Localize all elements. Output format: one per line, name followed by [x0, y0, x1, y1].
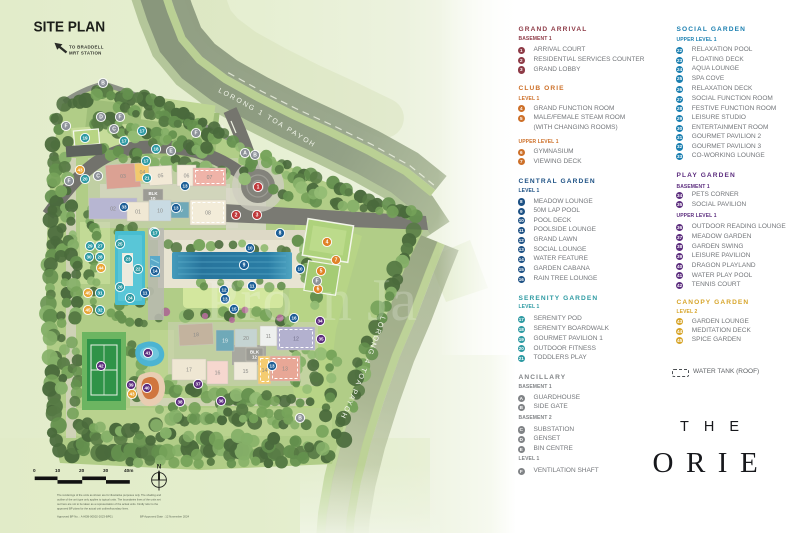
svg-text:12: 12 [293, 336, 299, 342]
svg-text:17: 17 [186, 367, 192, 373]
svg-text:27: 27 [97, 244, 103, 249]
svg-text:B: B [253, 153, 257, 159]
svg-text:13: 13 [173, 206, 179, 211]
svg-text:13: 13 [282, 366, 288, 372]
svg-text:A: A [243, 151, 247, 157]
svg-text:15: 15 [243, 369, 249, 375]
svg-text:08: 08 [205, 210, 211, 216]
svg-text:31: 31 [97, 291, 103, 296]
svg-text:C: C [112, 127, 116, 133]
svg-text:32: 32 [97, 308, 103, 313]
svg-text:11: 11 [266, 334, 271, 340]
svg-text:Pro: Pro [205, 267, 294, 333]
svg-text:29: 29 [87, 244, 93, 249]
svg-text:19: 19 [82, 136, 88, 141]
svg-text:10: 10 [55, 468, 61, 473]
svg-text:BP Approved Date : 12 November: BP Approved Date : 12 November 2024 [140, 515, 190, 519]
svg-text:42: 42 [98, 364, 104, 369]
svg-text:25: 25 [117, 242, 123, 247]
svg-text:approved BP plans for the actu: approved BP plans for the actual unit ou… [57, 507, 129, 511]
svg-text:45: 45 [85, 291, 91, 296]
svg-text:7: 7 [335, 258, 338, 264]
svg-text:N: N [157, 465, 161, 471]
svg-text:06: 06 [184, 173, 190, 179]
svg-text:20: 20 [82, 177, 88, 182]
svg-text:F: F [194, 131, 197, 137]
svg-text:17: 17 [121, 139, 127, 144]
svg-text:40: 40 [144, 386, 150, 391]
svg-text:4: 4 [326, 240, 329, 246]
svg-text:outline of the unit type only: outline of the unit type only applies to… [57, 498, 161, 502]
svg-text:03: 03 [120, 174, 126, 180]
svg-text:13: 13 [182, 184, 188, 189]
svg-text:17: 17 [139, 129, 145, 134]
svg-text:10: 10 [247, 246, 253, 251]
svg-text:1: 1 [257, 185, 260, 191]
svg-text:13: 13 [269, 364, 275, 369]
svg-text:23: 23 [125, 257, 131, 262]
svg-text:28: 28 [97, 255, 103, 260]
svg-text:14: 14 [262, 368, 268, 374]
svg-text:05: 05 [157, 173, 163, 179]
svg-text:8: 8 [279, 231, 282, 237]
svg-text:22: 22 [135, 267, 141, 272]
svg-text:19: 19 [222, 338, 228, 344]
svg-text:16: 16 [215, 370, 221, 376]
svg-text:17: 17 [143, 159, 149, 164]
svg-text:12: 12 [252, 355, 257, 360]
svg-text:24: 24 [127, 296, 133, 301]
svg-text:37: 37 [195, 382, 201, 387]
svg-text:26: 26 [117, 285, 123, 290]
svg-text:SITE PLAN: SITE PLAN [33, 19, 105, 35]
svg-text:MRT STATION: MRT STATION [69, 51, 102, 56]
svg-text:18: 18 [193, 332, 199, 338]
svg-text:07: 07 [207, 175, 213, 181]
svg-text:17: 17 [152, 231, 158, 236]
svg-text:F: F [118, 115, 121, 121]
svg-text:21: 21 [144, 176, 150, 181]
svg-text:F: F [64, 124, 67, 130]
svg-text:3: 3 [256, 213, 259, 219]
svg-text:2: 2 [235, 213, 238, 219]
svg-text:20: 20 [243, 336, 249, 342]
svg-text:01: 01 [135, 209, 141, 215]
svg-text:The renderings of the units as: The renderings of the units as shown are… [57, 493, 162, 497]
svg-text:40m: 40m [124, 468, 133, 473]
svg-text:D: D [99, 115, 103, 121]
svg-text:43: 43 [129, 392, 135, 397]
svg-text:Approved BP No. : A HDB-00502-: Approved BP No. : A HDB-00502-2023-BP01 [57, 515, 113, 519]
svg-text:30: 30 [103, 468, 109, 473]
svg-text:F: F [315, 279, 318, 285]
svg-text:18: 18 [153, 147, 159, 152]
svg-text:44: 44 [98, 266, 104, 271]
svg-text:35: 35 [318, 337, 324, 342]
svg-text:41: 41 [145, 351, 151, 356]
svg-text:11: 11 [143, 291, 148, 296]
svg-text:45: 45 [85, 308, 91, 313]
svg-text:43: 43 [77, 168, 83, 173]
svg-text:n Ja: n Ja [322, 267, 417, 333]
svg-text:30: 30 [86, 255, 92, 260]
svg-text:38: 38 [177, 400, 183, 405]
svg-text:out here are not to be taken a: out here are not to be taken as a repres… [57, 502, 159, 506]
svg-text:33: 33 [121, 205, 127, 210]
svg-text:0: 0 [33, 468, 36, 473]
svg-text:F: F [67, 179, 70, 185]
svg-text:10: 10 [157, 208, 163, 214]
svg-text:B: B [101, 81, 105, 87]
svg-text:14: 14 [152, 269, 158, 274]
svg-text:10: 10 [297, 267, 303, 272]
svg-text:TO BRADDELL: TO BRADDELL [69, 45, 104, 50]
svg-text:02: 02 [110, 206, 116, 212]
svg-text:C: C [96, 174, 100, 180]
svg-text:6: 6 [317, 287, 320, 293]
svg-text:39: 39 [128, 383, 134, 388]
svg-text:36: 36 [218, 399, 224, 404]
svg-text:20: 20 [79, 468, 85, 473]
svg-text:B: B [298, 416, 302, 422]
